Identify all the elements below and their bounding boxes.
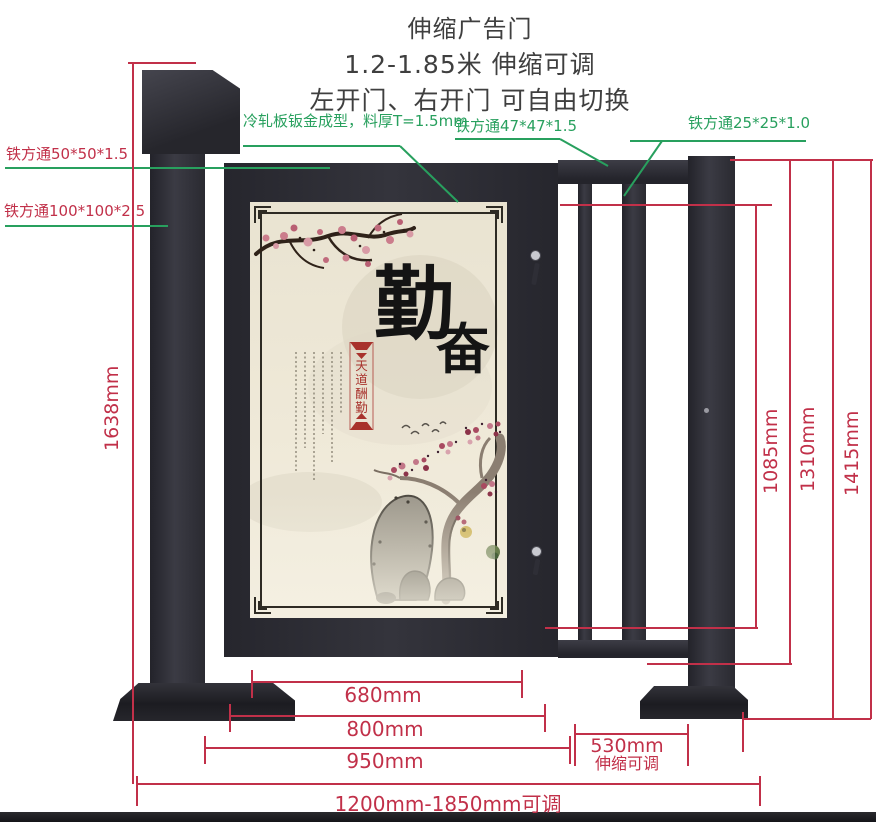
dim-frame-height: 1310mm xyxy=(797,412,819,492)
calligraphy-fen: 奋 xyxy=(436,317,490,381)
hanging-key xyxy=(532,559,540,576)
banner-char: 天 xyxy=(355,358,368,373)
dim-section-width: 950mm xyxy=(332,749,438,773)
dim-total-height: 1638mm xyxy=(101,371,123,451)
page-title: 伸缩广告门 xyxy=(190,9,750,44)
dim-poster-width: 680mm xyxy=(330,683,436,707)
hanging-key xyxy=(531,263,540,286)
picket-thin xyxy=(578,184,592,642)
poster-artwork: 勤 奋 天 道 xyxy=(250,202,507,618)
mist-overlay xyxy=(262,492,495,606)
banner-char: 勤 xyxy=(355,400,368,415)
banner-char: 酬 xyxy=(355,386,368,401)
left-post xyxy=(150,152,205,690)
dim-gate-height: 1415mm xyxy=(841,416,863,496)
dim-extend-width: 530mm 伸缩可调 xyxy=(577,737,677,773)
lock-keyhole xyxy=(530,250,541,261)
motor-housing xyxy=(142,70,240,154)
advert-poster: 勤 奋 天 道 xyxy=(250,202,507,618)
lock-keyhole xyxy=(531,546,542,557)
right-post xyxy=(688,156,735,690)
callout-tube-25: 铁方通25*25*1.0 xyxy=(688,112,810,133)
post-bolt xyxy=(704,408,709,413)
door-leaf: 勤 奋 天 道 xyxy=(224,163,558,657)
right-post-base xyxy=(640,686,748,719)
dim-door-width: 800mm xyxy=(332,717,438,741)
door-lock-top xyxy=(528,250,542,285)
left-post-base xyxy=(113,683,295,721)
dim-extend-note: 伸缩可调 xyxy=(577,755,677,773)
callout-tube-50: 铁方通50*50*1.5 xyxy=(6,143,128,164)
banner-char: 道 xyxy=(355,372,368,387)
subtitle-range: 1.2-1.85米 伸缩可调 xyxy=(190,45,750,81)
door-lock-bottom xyxy=(529,546,543,575)
product-diagram: 伸缩广告门 1.2-1.85米 伸缩可调 左开门、右开门 可自由切换 xyxy=(0,0,876,822)
dim-total-width: 1200mm-1850mm可调 xyxy=(318,788,578,817)
callout-sheet-metal: 冷轧板钣金成型，料厚T=1.5mm xyxy=(243,110,468,131)
dim-extend-value: 530mm xyxy=(577,737,677,755)
callout-tube-47: 铁方通47*47*1.5 xyxy=(455,115,577,136)
dim-door-height: 1085mm xyxy=(760,414,782,494)
callout-tube-100: 铁方通100*100*2.5 xyxy=(4,200,145,221)
picket-wide xyxy=(622,184,646,642)
